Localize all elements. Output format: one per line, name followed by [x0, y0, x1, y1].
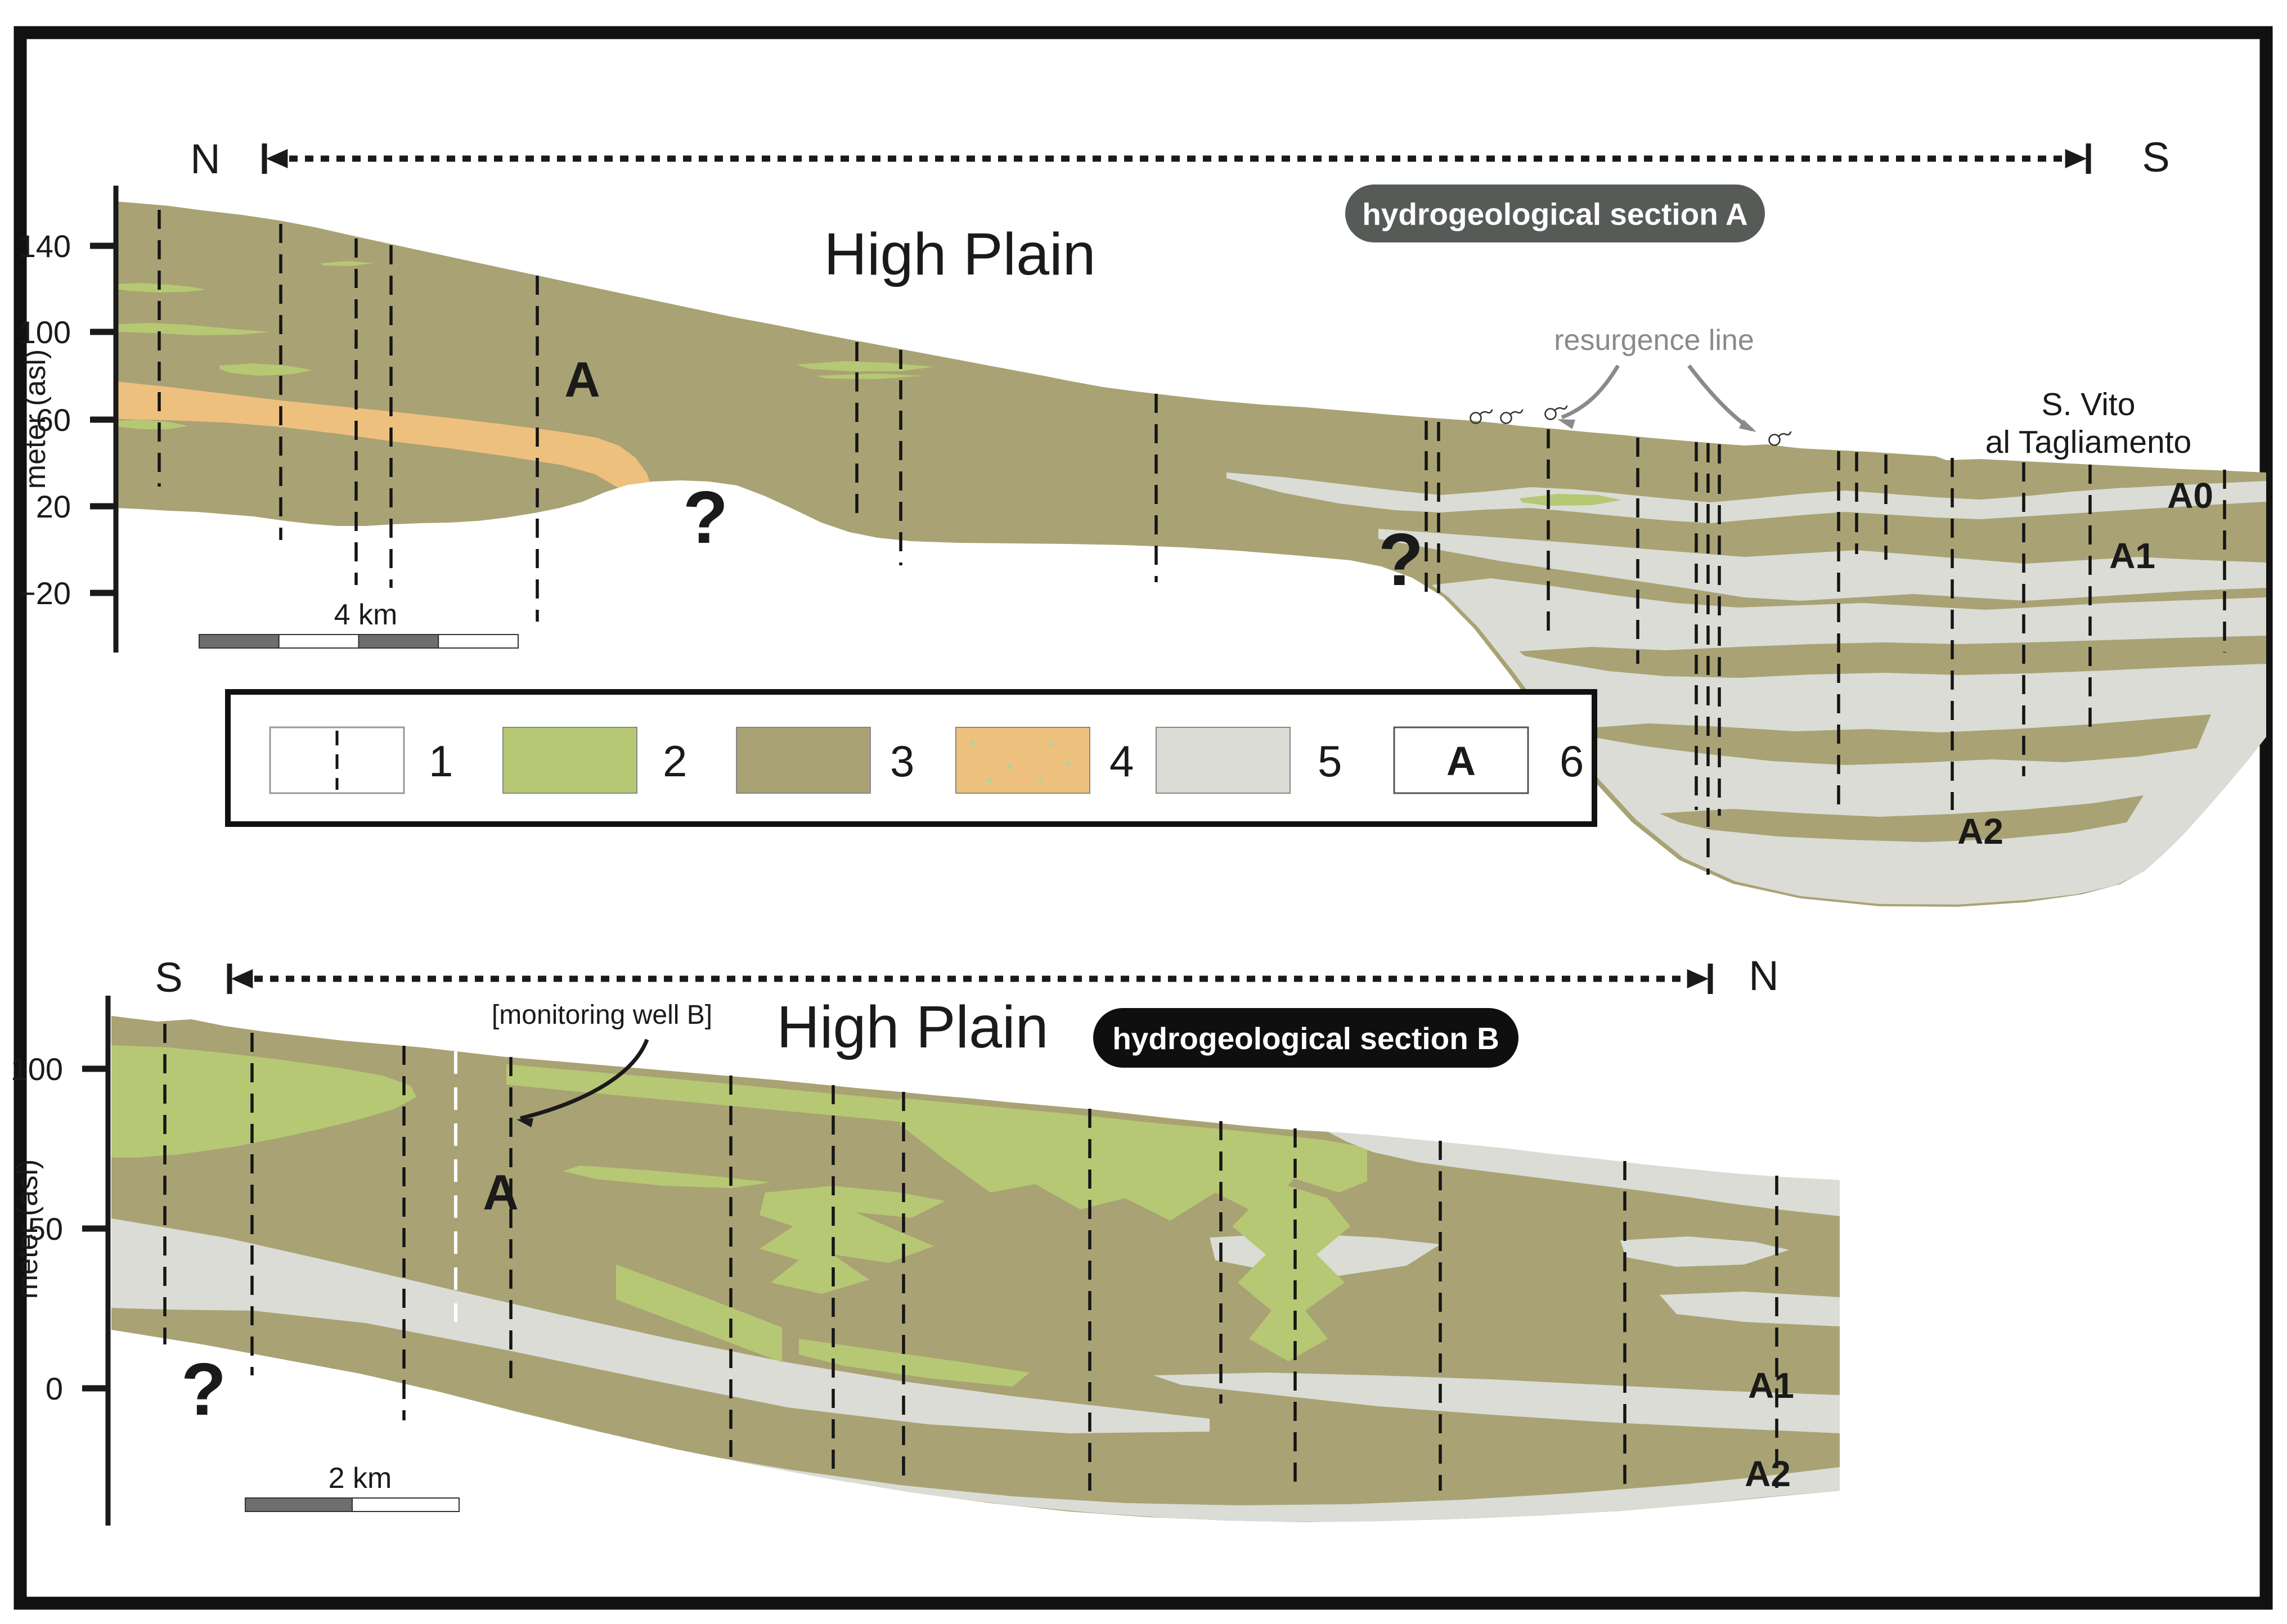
- section-a-badge-label: hydrogeological section A: [1362, 196, 1748, 231]
- scalebar-segment: [245, 1498, 352, 1511]
- legend-item-number: 6: [1560, 736, 1584, 786]
- legend-swatch: [956, 727, 1090, 793]
- section-b-badge-label: hydrogeological section B: [1112, 1021, 1499, 1056]
- scalebar-label: 2 km: [329, 1462, 392, 1495]
- scalebar-segment: [359, 635, 439, 648]
- aquifer-label-a2: A2: [1957, 811, 2003, 852]
- question-mark: ?: [181, 1348, 227, 1430]
- legend-letter-a: A: [1446, 739, 1476, 784]
- section-a-title: High Plain: [824, 221, 1095, 287]
- aquifer-label-a2: A2: [1745, 1454, 1791, 1494]
- legend-item-number: 2: [663, 736, 687, 786]
- axis-tick-label: 0: [46, 1371, 63, 1406]
- figure-canvas: 1401006020−20meter (asl)NSHigh Plainhydr…: [0, 0, 2287, 1624]
- legend-speckle: [970, 741, 975, 745]
- scalebar-label: 4 km: [334, 599, 398, 631]
- monitoring-well-label: [monitoring well B]: [492, 1000, 712, 1030]
- legend-swatch: [736, 727, 870, 793]
- aquifer-label-a1: A1: [2109, 536, 2155, 576]
- aquifer-label-a0: A0: [2167, 475, 2213, 516]
- axis-tick-label: 140: [19, 228, 71, 264]
- axis-tick-label: 100: [19, 314, 71, 350]
- section-b-title: High Plain: [776, 994, 1048, 1060]
- legend-speckle: [1008, 764, 1012, 769]
- legend-speckle: [987, 779, 992, 783]
- question-mark-2: ?: [1378, 518, 1424, 601]
- axis-unit-label: meter (asl): [19, 349, 52, 489]
- legend-item-number: 4: [1109, 736, 1134, 786]
- question-mark-1: ?: [683, 476, 729, 559]
- compass-label-n: N: [190, 136, 220, 182]
- axis-unit-label: meter (asl): [11, 1159, 44, 1299]
- legend-speckle: [1066, 761, 1071, 766]
- legend-item-number: 5: [1318, 736, 1342, 786]
- resurgence-line-label: resurgence line: [1554, 324, 1754, 357]
- axis-tick-label: 20: [36, 489, 71, 524]
- scalebar-segment: [352, 1498, 459, 1511]
- hydrogeological-figure: 1401006020−20meter (asl)NSHigh Plainhydr…: [0, 0, 2287, 1624]
- scalebar-segment: [438, 635, 518, 648]
- legend-swatch: [1156, 727, 1290, 793]
- legend-item-number: 1: [429, 736, 453, 786]
- compass-label-s: S: [155, 954, 182, 1001]
- aquifer-label-a1: A1: [1748, 1365, 1794, 1406]
- compass-label-n: N: [1749, 952, 1778, 999]
- legend-speckle: [1049, 742, 1054, 746]
- legend: 12345A6: [228, 692, 1594, 824]
- place-label-line1: S. Vito: [2042, 386, 2136, 422]
- legend-swatch: [503, 727, 637, 793]
- scalebar-segment: [279, 635, 359, 648]
- place-label-line2: al Tagliamento: [1985, 424, 2192, 460]
- scalebar-segment: [199, 635, 279, 648]
- legend-speckle: [1038, 777, 1043, 781]
- legend-item-number: 3: [890, 736, 914, 786]
- aquifer-label-a: A: [483, 1164, 519, 1220]
- axis-tick-label: 100: [11, 1051, 63, 1087]
- aquifer-label-a: A: [564, 352, 600, 407]
- compass-label-s: S: [2142, 134, 2169, 181]
- axis-tick-label: −20: [17, 575, 71, 611]
